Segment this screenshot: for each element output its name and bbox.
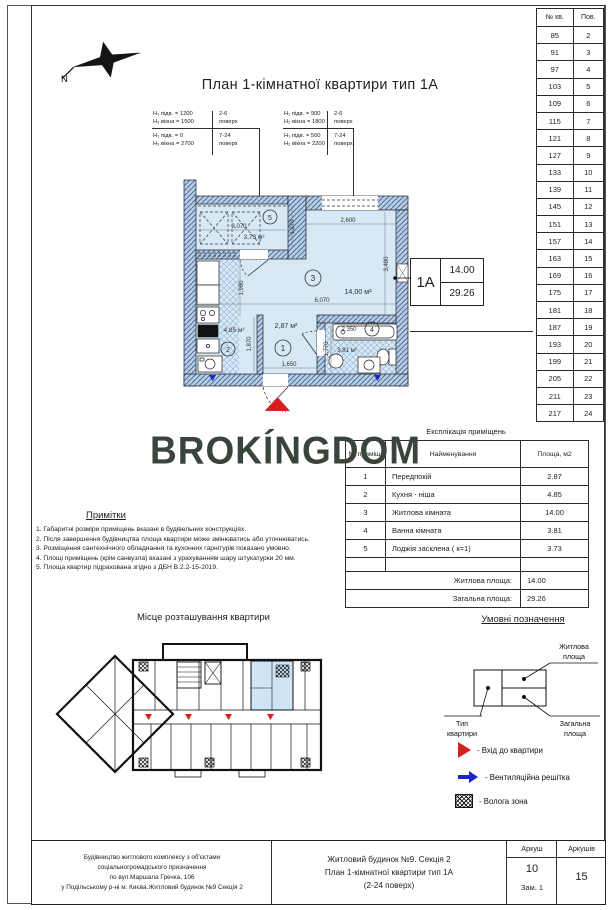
room-name-cell: Лоджія засклена ( к=1) bbox=[386, 540, 521, 558]
apartment-number-cell: 181 bbox=[537, 302, 574, 319]
apartment-number-cell: 103 bbox=[537, 78, 574, 95]
apartment-row: 97 4 bbox=[537, 61, 604, 78]
floor-cell: 9 bbox=[573, 147, 603, 164]
legend-vent: - Вентиляційна решітка bbox=[458, 770, 570, 784]
apartment-row: 127 9 bbox=[537, 147, 604, 164]
apartment-number-cell: 91 bbox=[537, 44, 574, 61]
page-title: План 1-кімнатної квартири тип 1А bbox=[150, 77, 490, 93]
floor-cell: 8 bbox=[573, 130, 603, 147]
height-note-right-r2-floors: 7-24поверх bbox=[334, 132, 353, 148]
apartment-row: 205 22 bbox=[537, 370, 604, 387]
svg-text:3,070: 3,070 bbox=[231, 224, 247, 230]
room-number-cell: 3 bbox=[346, 504, 386, 522]
apartment-row: 157 14 bbox=[537, 233, 604, 250]
apartment-total-area: 29.26 bbox=[441, 283, 483, 306]
height-note-right-r1-values: H₁ підв. = 900H₂ вікна = 1800 bbox=[284, 110, 325, 126]
legend-type-label: Тип bbox=[456, 719, 468, 728]
apartment-row: 193 20 bbox=[537, 336, 604, 353]
location-title: Місце розташування квартири bbox=[137, 612, 270, 623]
apartment-number-cell: 97 bbox=[537, 61, 574, 78]
height-note-left-r1-values: H₁ підв. = 1200H₂ вікна = 1500 bbox=[153, 110, 194, 126]
legend-entrance-label: - Вхід до квартири bbox=[477, 746, 543, 755]
total-area-label: Загальна площа: bbox=[346, 590, 521, 608]
type-box-extension-line bbox=[410, 331, 533, 332]
apartment-number-cell: 85 bbox=[537, 27, 574, 44]
svg-text:1,870: 1,870 bbox=[247, 336, 253, 352]
apartment-number-cell: 199 bbox=[537, 353, 574, 370]
height-note-left-r2-values: H₁ підв. = 0H₂ вікна = 2700 bbox=[153, 132, 194, 148]
floor-cell: 20 bbox=[573, 336, 603, 353]
apartment-number-cell: 169 bbox=[537, 267, 574, 284]
svg-text:4: 4 bbox=[370, 327, 374, 334]
height-note-right-underline bbox=[283, 128, 353, 129]
apartment-number-cell: 115 bbox=[537, 112, 574, 129]
svg-text:3,73 м²: 3,73 м² bbox=[243, 234, 265, 241]
notes-title: Примітки bbox=[86, 510, 126, 521]
compass-icon: N bbox=[55, 30, 155, 100]
title-block-sheet-name-line: План 1-кімнатної квартири тип 1А bbox=[325, 866, 453, 879]
room-number-cell: 5 bbox=[346, 540, 386, 558]
height-note-right-divider bbox=[327, 111, 328, 155]
room-area-cell: 3.73 bbox=[521, 540, 589, 558]
apartments-table-header: № кв. Пов. bbox=[537, 9, 604, 27]
apartment-row: 181 18 bbox=[537, 302, 604, 319]
room-name-cell: Житлова кімната bbox=[386, 504, 521, 522]
floor-cell: 16 bbox=[573, 267, 603, 284]
floor-cell: 3 bbox=[573, 44, 603, 61]
svg-text:2,87 м²: 2,87 м² bbox=[275, 323, 298, 330]
sheets-header: Аркушів bbox=[558, 844, 605, 853]
apartment-row: 163 15 bbox=[537, 250, 604, 267]
svg-text:площа: площа bbox=[564, 729, 586, 738]
floor-cell: 4 bbox=[573, 61, 603, 78]
note-item: 2. Після завершення будівництва площа кв… bbox=[36, 535, 310, 545]
living-area-value: 14.00 bbox=[521, 572, 589, 590]
explication-empty-row bbox=[346, 558, 589, 572]
highlighted-apartment bbox=[251, 661, 293, 710]
explication-row: 2 Кухня - ніша 4.85 bbox=[346, 486, 589, 504]
floor-cell: 7 bbox=[573, 112, 603, 129]
legend-entrance: - Вхід до квартири bbox=[458, 742, 543, 758]
svg-text:2: 2 bbox=[226, 347, 230, 354]
legend-wet-label: - Волога зона bbox=[479, 797, 528, 806]
apartment-number-cell: 121 bbox=[537, 130, 574, 147]
floor-cell: 22 bbox=[573, 370, 603, 387]
apartment-row: 211 23 bbox=[537, 387, 604, 404]
height-note-left-divider bbox=[212, 111, 213, 155]
floor-cell: 13 bbox=[573, 216, 603, 233]
apartment-row: 103 5 bbox=[537, 78, 604, 95]
floor-cell: 18 bbox=[573, 302, 603, 319]
title-block-sheet-name-line: Житловий будинок №9. Секція 2 bbox=[327, 853, 450, 866]
explication-row: 4 Ванна кімната 3.81 bbox=[346, 522, 589, 540]
apartment-row: 175 17 bbox=[537, 284, 604, 301]
apartment-row: 199 21 bbox=[537, 353, 604, 370]
apartment-row: 109 6 bbox=[537, 95, 604, 112]
apartment-number-cell: 139 bbox=[537, 181, 574, 198]
apartment-number-cell: 193 bbox=[537, 336, 574, 353]
apartment-number-cell: 133 bbox=[537, 164, 574, 181]
room-number-cell: 2 bbox=[346, 486, 386, 504]
floor-cell: 12 bbox=[573, 198, 603, 215]
floor-cell: 21 bbox=[573, 353, 603, 370]
apartment-number-cell: 163 bbox=[537, 250, 574, 267]
svg-text:3: 3 bbox=[311, 274, 316, 283]
floor-cell: 5 bbox=[573, 78, 603, 95]
svg-text:5: 5 bbox=[268, 215, 272, 222]
legend-title: Умовні позначення bbox=[448, 614, 598, 625]
apartment-number-cell: 151 bbox=[537, 216, 574, 233]
title-block-sheet-name: Житловий будинок №9. Секція 2План 1-кімн… bbox=[273, 841, 505, 904]
apartment-number-cell: 109 bbox=[537, 95, 574, 112]
floor-cell: 19 bbox=[573, 319, 603, 336]
height-note-left-r1-floors: 2-6поверх bbox=[219, 110, 238, 126]
living-area-label: Житлова площа: bbox=[346, 572, 521, 590]
floor-cell: 24 bbox=[573, 405, 603, 422]
vent-arrow-icon bbox=[458, 770, 479, 784]
entrance-arrow-icon bbox=[265, 397, 290, 411]
height-note-left-r2-floors: 7-24поверх bbox=[219, 132, 238, 148]
height-note-left-underline bbox=[152, 128, 259, 129]
apartment-number-cell: 157 bbox=[537, 233, 574, 250]
floor-cell: 17 bbox=[573, 284, 603, 301]
apartment-row: 121 8 bbox=[537, 130, 604, 147]
title-block-project-line: Будівництво житлового комплексу з об'єкт… bbox=[84, 853, 221, 863]
room-area-cell: 3.81 bbox=[521, 522, 589, 540]
legend-total-area-label: Загальна bbox=[560, 719, 591, 728]
apartment-number-cell: 175 bbox=[537, 284, 574, 301]
apartment-number-cell: 217 bbox=[537, 405, 574, 422]
title-block-sheet-name-line: (2-24 поверх) bbox=[364, 879, 414, 892]
drawing-sheet: N План 1-кімнатної квартири тип 1А H₁ пі… bbox=[0, 0, 612, 910]
legend-wet: - Волога зона bbox=[455, 794, 528, 808]
apartment-number-cell: 145 bbox=[537, 198, 574, 215]
sheet-header: Аркуш bbox=[508, 844, 556, 853]
living-area-summary-row: Житлова площа: 14.00 bbox=[346, 572, 589, 590]
note-item: 1. Габаритні розміри приміщень вказані в… bbox=[36, 525, 310, 535]
floor-cell: 23 bbox=[573, 387, 603, 404]
room-number-cell: 4 bbox=[346, 522, 386, 540]
svg-text:2 350: 2 350 bbox=[341, 327, 357, 333]
floor-cell: 15 bbox=[573, 250, 603, 267]
room-area-cell: 14.00 bbox=[521, 504, 589, 522]
title-block-project-line: у Подільському р-ні м. Києва.Житловий бу… bbox=[61, 883, 243, 893]
height-note-right-r1-floors: 2-6поверх bbox=[334, 110, 353, 126]
apartment-number-cell: 205 bbox=[537, 370, 574, 387]
svg-text:2,600: 2,600 bbox=[340, 218, 356, 224]
svg-text:квартири: квартири bbox=[447, 729, 477, 738]
apartment-row: 85 2 bbox=[537, 27, 604, 44]
apartment-row: 217 24 bbox=[537, 405, 604, 422]
height-note-right-r2-values: H₁ підв. = 500H₂ вікна = 2200 bbox=[284, 132, 325, 148]
sheet-note: Зам. 1 bbox=[508, 883, 556, 892]
floor-cell: 6 bbox=[573, 95, 603, 112]
title-block: Будівництво житлового комплексу з об'єкт… bbox=[31, 840, 606, 905]
apartment-row: 91 3 bbox=[537, 44, 604, 61]
brokingdom-watermark: BROKÍNGDOM bbox=[150, 429, 421, 473]
apartment-row: 115 7 bbox=[537, 112, 604, 129]
apartment-row: 187 19 bbox=[537, 319, 604, 336]
apartment-row: 139 11 bbox=[537, 181, 604, 198]
apartment-number-cell: 187 bbox=[537, 319, 574, 336]
svg-text:1: 1 bbox=[281, 344, 286, 353]
entrance-arrow-icon bbox=[458, 742, 471, 758]
apartment-number-cell: 127 bbox=[537, 147, 574, 164]
svg-text:4,85 м²: 4,85 м² bbox=[223, 327, 245, 334]
legend-vent-label: - Вентиляційна решітка bbox=[485, 773, 570, 782]
title-block-project: Будівництво житлового комплексу з об'єкт… bbox=[34, 841, 270, 904]
svg-text:1,980: 1,980 bbox=[239, 280, 245, 296]
apartment-type-label: 1А bbox=[411, 259, 441, 305]
title-block-project-line: по вул.Маршала Гречка, 106 bbox=[110, 873, 195, 883]
floor-plan: 3,070 1,270 2,600 3,480 1,980 6,070 1,87… bbox=[182, 168, 412, 418]
total-area-value: 29.26 bbox=[521, 590, 589, 608]
sheet-number: 10 bbox=[508, 863, 556, 875]
note-item: 4. Площі приміщень (крім санвузла) вказа… bbox=[36, 554, 310, 564]
title-block-project-line: соціальногромадського призначення bbox=[97, 863, 206, 873]
svg-text:1,650: 1,650 bbox=[281, 362, 297, 368]
svg-text:14,00 м²: 14,00 м² bbox=[344, 287, 372, 296]
note-item: 5. Площа квартир підрахована згідно з ДБ… bbox=[36, 563, 310, 573]
room-name-cell: Кухня - ніша bbox=[386, 486, 521, 504]
total-area-summary-row: Загальна площа: 29.26 bbox=[346, 590, 589, 608]
apartment-row: 151 13 bbox=[537, 216, 604, 233]
apartment-number-cell: 211 bbox=[537, 387, 574, 404]
room-area-cell: 2.87 bbox=[521, 468, 589, 486]
location-plan bbox=[55, 630, 345, 830]
legend-living-area-label: Житлова bbox=[559, 642, 589, 651]
col-apartment-number: № кв. bbox=[537, 9, 574, 27]
apartment-row: 169 16 bbox=[537, 267, 604, 284]
floor-cell: 14 bbox=[573, 233, 603, 250]
wet-zone-icon bbox=[455, 794, 473, 808]
room-name-cell: Ванна кімната bbox=[386, 522, 521, 540]
svg-text:3,81 м²: 3,81 м² bbox=[337, 348, 356, 354]
explication-row: 3 Житлова кімната 14.00 bbox=[346, 504, 589, 522]
floor-cell: 2 bbox=[573, 27, 603, 44]
note-item: 3. Розміщення сантехнічного обладнання т… bbox=[36, 544, 310, 554]
entrance-marks bbox=[145, 714, 274, 720]
col-floor: Пов. bbox=[573, 9, 603, 27]
legend-diagram: Житлова площа Тип квартири Загальна площ… bbox=[436, 636, 602, 744]
svg-text:площа: площа bbox=[563, 652, 585, 661]
apartment-living-area: 14.00 bbox=[441, 259, 483, 283]
explication-row: 5 Лоджія засклена ( к=1) 3.73 bbox=[346, 540, 589, 558]
sheets-total: 15 bbox=[558, 871, 605, 883]
svg-text:1,770: 1,770 bbox=[324, 341, 330, 357]
floor-cell: 10 bbox=[573, 164, 603, 181]
col-room-area: Площа, м2 bbox=[521, 441, 589, 468]
room-area-cell: 4.85 bbox=[521, 486, 589, 504]
floor-cell: 11 bbox=[573, 181, 603, 198]
svg-text:3,480: 3,480 bbox=[384, 256, 390, 272]
apartment-row: 145 12 bbox=[537, 198, 604, 215]
apartment-type-box: 1А 14.00 29.26 bbox=[410, 258, 484, 306]
svg-text:1,270: 1,270 bbox=[290, 219, 296, 235]
apartment-row: 133 10 bbox=[537, 164, 604, 181]
svg-text:6,070: 6,070 bbox=[314, 298, 330, 304]
compass-n-label: N bbox=[61, 74, 68, 85]
apartments-floors-table: № кв. Пов. 85 2 91 3 97 4 103 5 109 6 11 bbox=[536, 8, 604, 422]
notes-list: 1. Габаритні розміри приміщень вказані в… bbox=[36, 525, 310, 573]
